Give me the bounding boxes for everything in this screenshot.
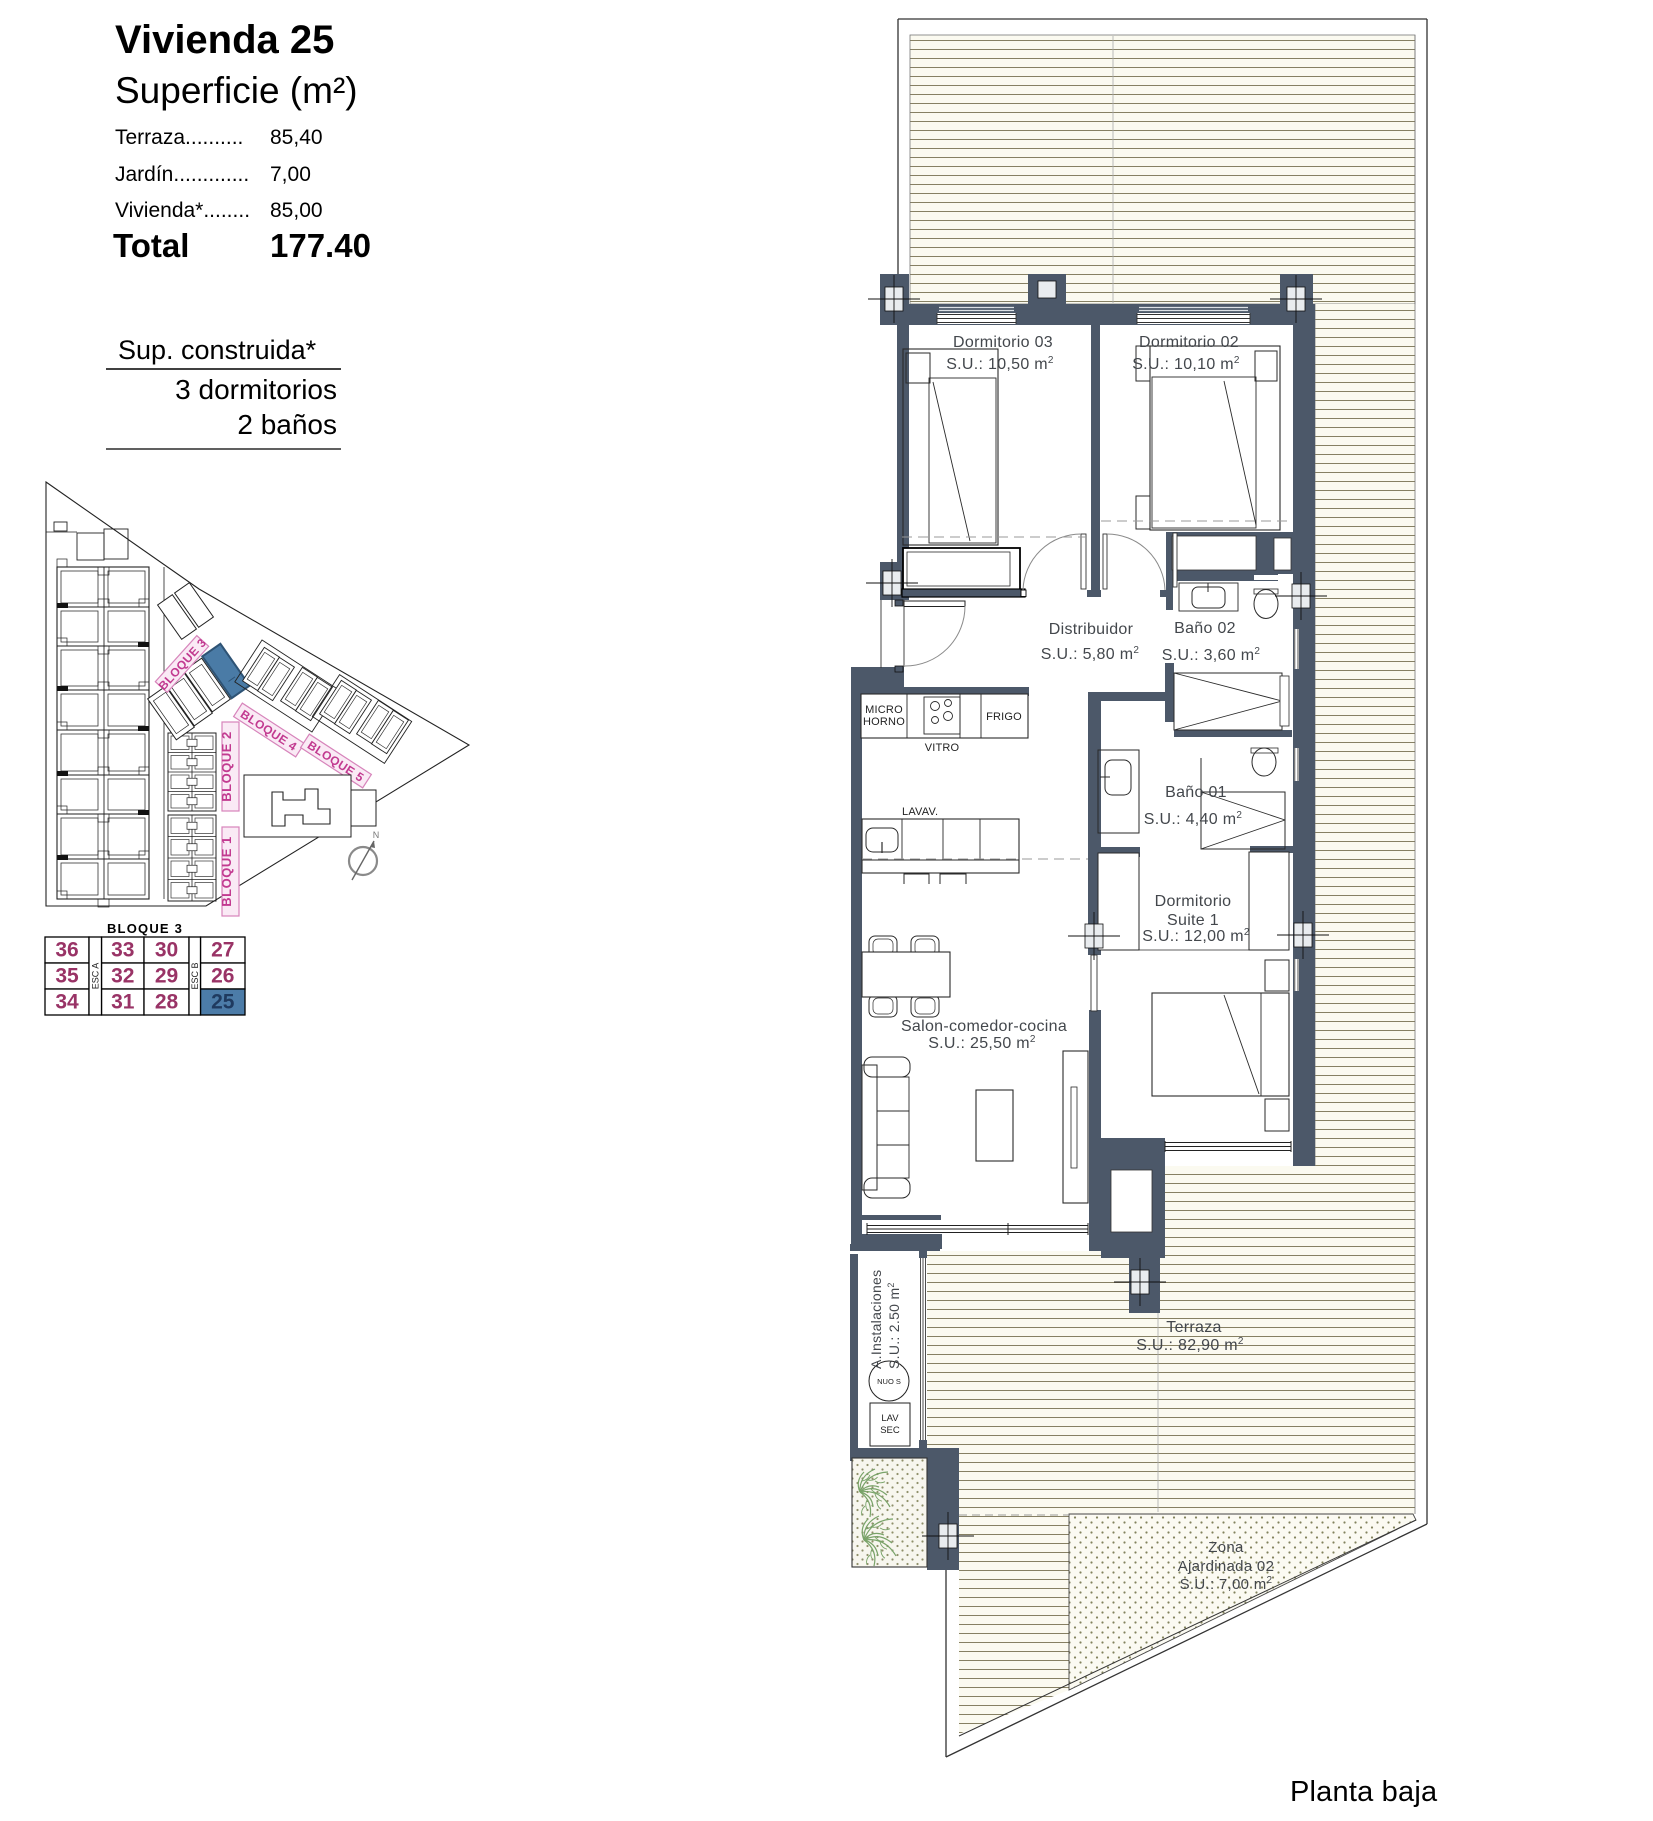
svg-text:FRIGO: FRIGO xyxy=(986,711,1022,723)
svg-text:A.Instalaciones: A.Instalaciones xyxy=(868,1270,884,1369)
svg-text:S.U.: 2.50 m2: S.U.: 2.50 m2 xyxy=(886,1282,902,1369)
svg-text:Terraza: Terraza xyxy=(1166,1319,1221,1336)
svg-text:3 dormitorios: 3 dormitorios xyxy=(175,374,337,405)
svg-text:S.U.: 10,10 m2: S.U.: 10,10 m2 xyxy=(1132,355,1240,373)
svg-text:30: 30 xyxy=(155,939,178,962)
svg-text:26: 26 xyxy=(211,965,234,988)
svg-text:BLOQUE 2: BLOQUE 2 xyxy=(219,731,234,801)
svg-text:Vivienda*........: Vivienda*........ xyxy=(115,199,250,222)
svg-text:28: 28 xyxy=(155,991,179,1014)
svg-text:Dormitorio 03: Dormitorio 03 xyxy=(953,334,1053,351)
svg-text:S.U.: 4,40 m2: S.U.: 4,40 m2 xyxy=(1144,810,1243,828)
svg-text:Distribuidor: Distribuidor xyxy=(1049,621,1134,638)
svg-text:N: N xyxy=(373,830,380,840)
svg-text:S.U.: 12,00 m2: S.U.: 12,00 m2 xyxy=(1142,927,1250,945)
svg-text:32: 32 xyxy=(111,965,134,988)
svg-text:34: 34 xyxy=(55,991,79,1014)
svg-text:177.40: 177.40 xyxy=(270,227,371,264)
svg-text:35: 35 xyxy=(55,965,79,988)
svg-text:VITRO: VITRO xyxy=(925,742,960,754)
svg-text:25: 25 xyxy=(211,991,235,1014)
svg-text:BLOQUE 3: BLOQUE 3 xyxy=(107,921,183,936)
svg-text:S.U.: 3,60 m2: S.U.: 3,60 m2 xyxy=(1162,646,1261,664)
svg-text:Dormitorio 02: Dormitorio 02 xyxy=(1139,334,1239,351)
svg-text:ESC A: ESC A xyxy=(90,963,100,990)
svg-text:7,00: 7,00 xyxy=(270,163,311,186)
svg-text:Terraza..........: Terraza.......... xyxy=(115,126,243,149)
svg-text:NUO S: NUO S xyxy=(877,1377,901,1386)
svg-text:Sup. construida*: Sup. construida* xyxy=(118,335,317,365)
svg-text:LAV: LAV xyxy=(881,1413,899,1424)
svg-text:Baño 01: Baño 01 xyxy=(1165,784,1227,801)
svg-text:Total: Total xyxy=(113,227,189,264)
svg-text:85,00: 85,00 xyxy=(270,199,323,222)
svg-text:31: 31 xyxy=(111,991,135,1014)
svg-text:Baño 02: Baño 02 xyxy=(1174,620,1236,637)
svg-text:BLOQUE 1: BLOQUE 1 xyxy=(219,836,234,906)
svg-text:27: 27 xyxy=(211,939,234,962)
svg-text:LAVAV.: LAVAV. xyxy=(902,806,938,818)
svg-text:S.U.: 10,50 m2: S.U.: 10,50 m2 xyxy=(946,355,1054,373)
svg-text:36: 36 xyxy=(55,939,78,962)
svg-text:S.U.: 82,90 m2: S.U.: 82,90 m2 xyxy=(1136,1336,1244,1354)
svg-text:Jardín.............: Jardín............. xyxy=(115,163,249,186)
svg-text:ESC B: ESC B xyxy=(190,962,200,989)
svg-text:Salon-comedor-cocina: Salon-comedor-cocina xyxy=(901,1018,1067,1035)
svg-text:Dormitorio: Dormitorio xyxy=(1155,893,1232,910)
svg-text:S.U.: 7,00 m2: S.U.: 7,00 m2 xyxy=(1180,1575,1273,1593)
svg-text:Ajardinada 02: Ajardinada 02 xyxy=(1178,1558,1274,1575)
svg-text:33: 33 xyxy=(111,939,134,962)
svg-text:S.U.: 5,80 m2: S.U.: 5,80 m2 xyxy=(1041,645,1140,663)
svg-text:29: 29 xyxy=(155,965,178,988)
svg-text:SEC: SEC xyxy=(880,1425,900,1436)
svg-text:Suite 1: Suite 1 xyxy=(1167,912,1219,929)
svg-text:HORNO: HORNO xyxy=(863,716,905,728)
svg-text:Superficie (m²): Superficie (m²) xyxy=(115,70,358,111)
svg-text:85,40: 85,40 xyxy=(270,126,323,149)
svg-text:2 baños: 2 baños xyxy=(237,409,337,440)
svg-text:Vivienda 25: Vivienda 25 xyxy=(115,18,334,62)
svg-text:S.U.: 25,50 m2: S.U.: 25,50 m2 xyxy=(928,1034,1036,1052)
svg-text:Zona: Zona xyxy=(1208,1539,1244,1556)
svg-text:MICRO: MICRO xyxy=(865,704,903,716)
svg-text:Planta baja: Planta baja xyxy=(1290,1776,1438,1808)
